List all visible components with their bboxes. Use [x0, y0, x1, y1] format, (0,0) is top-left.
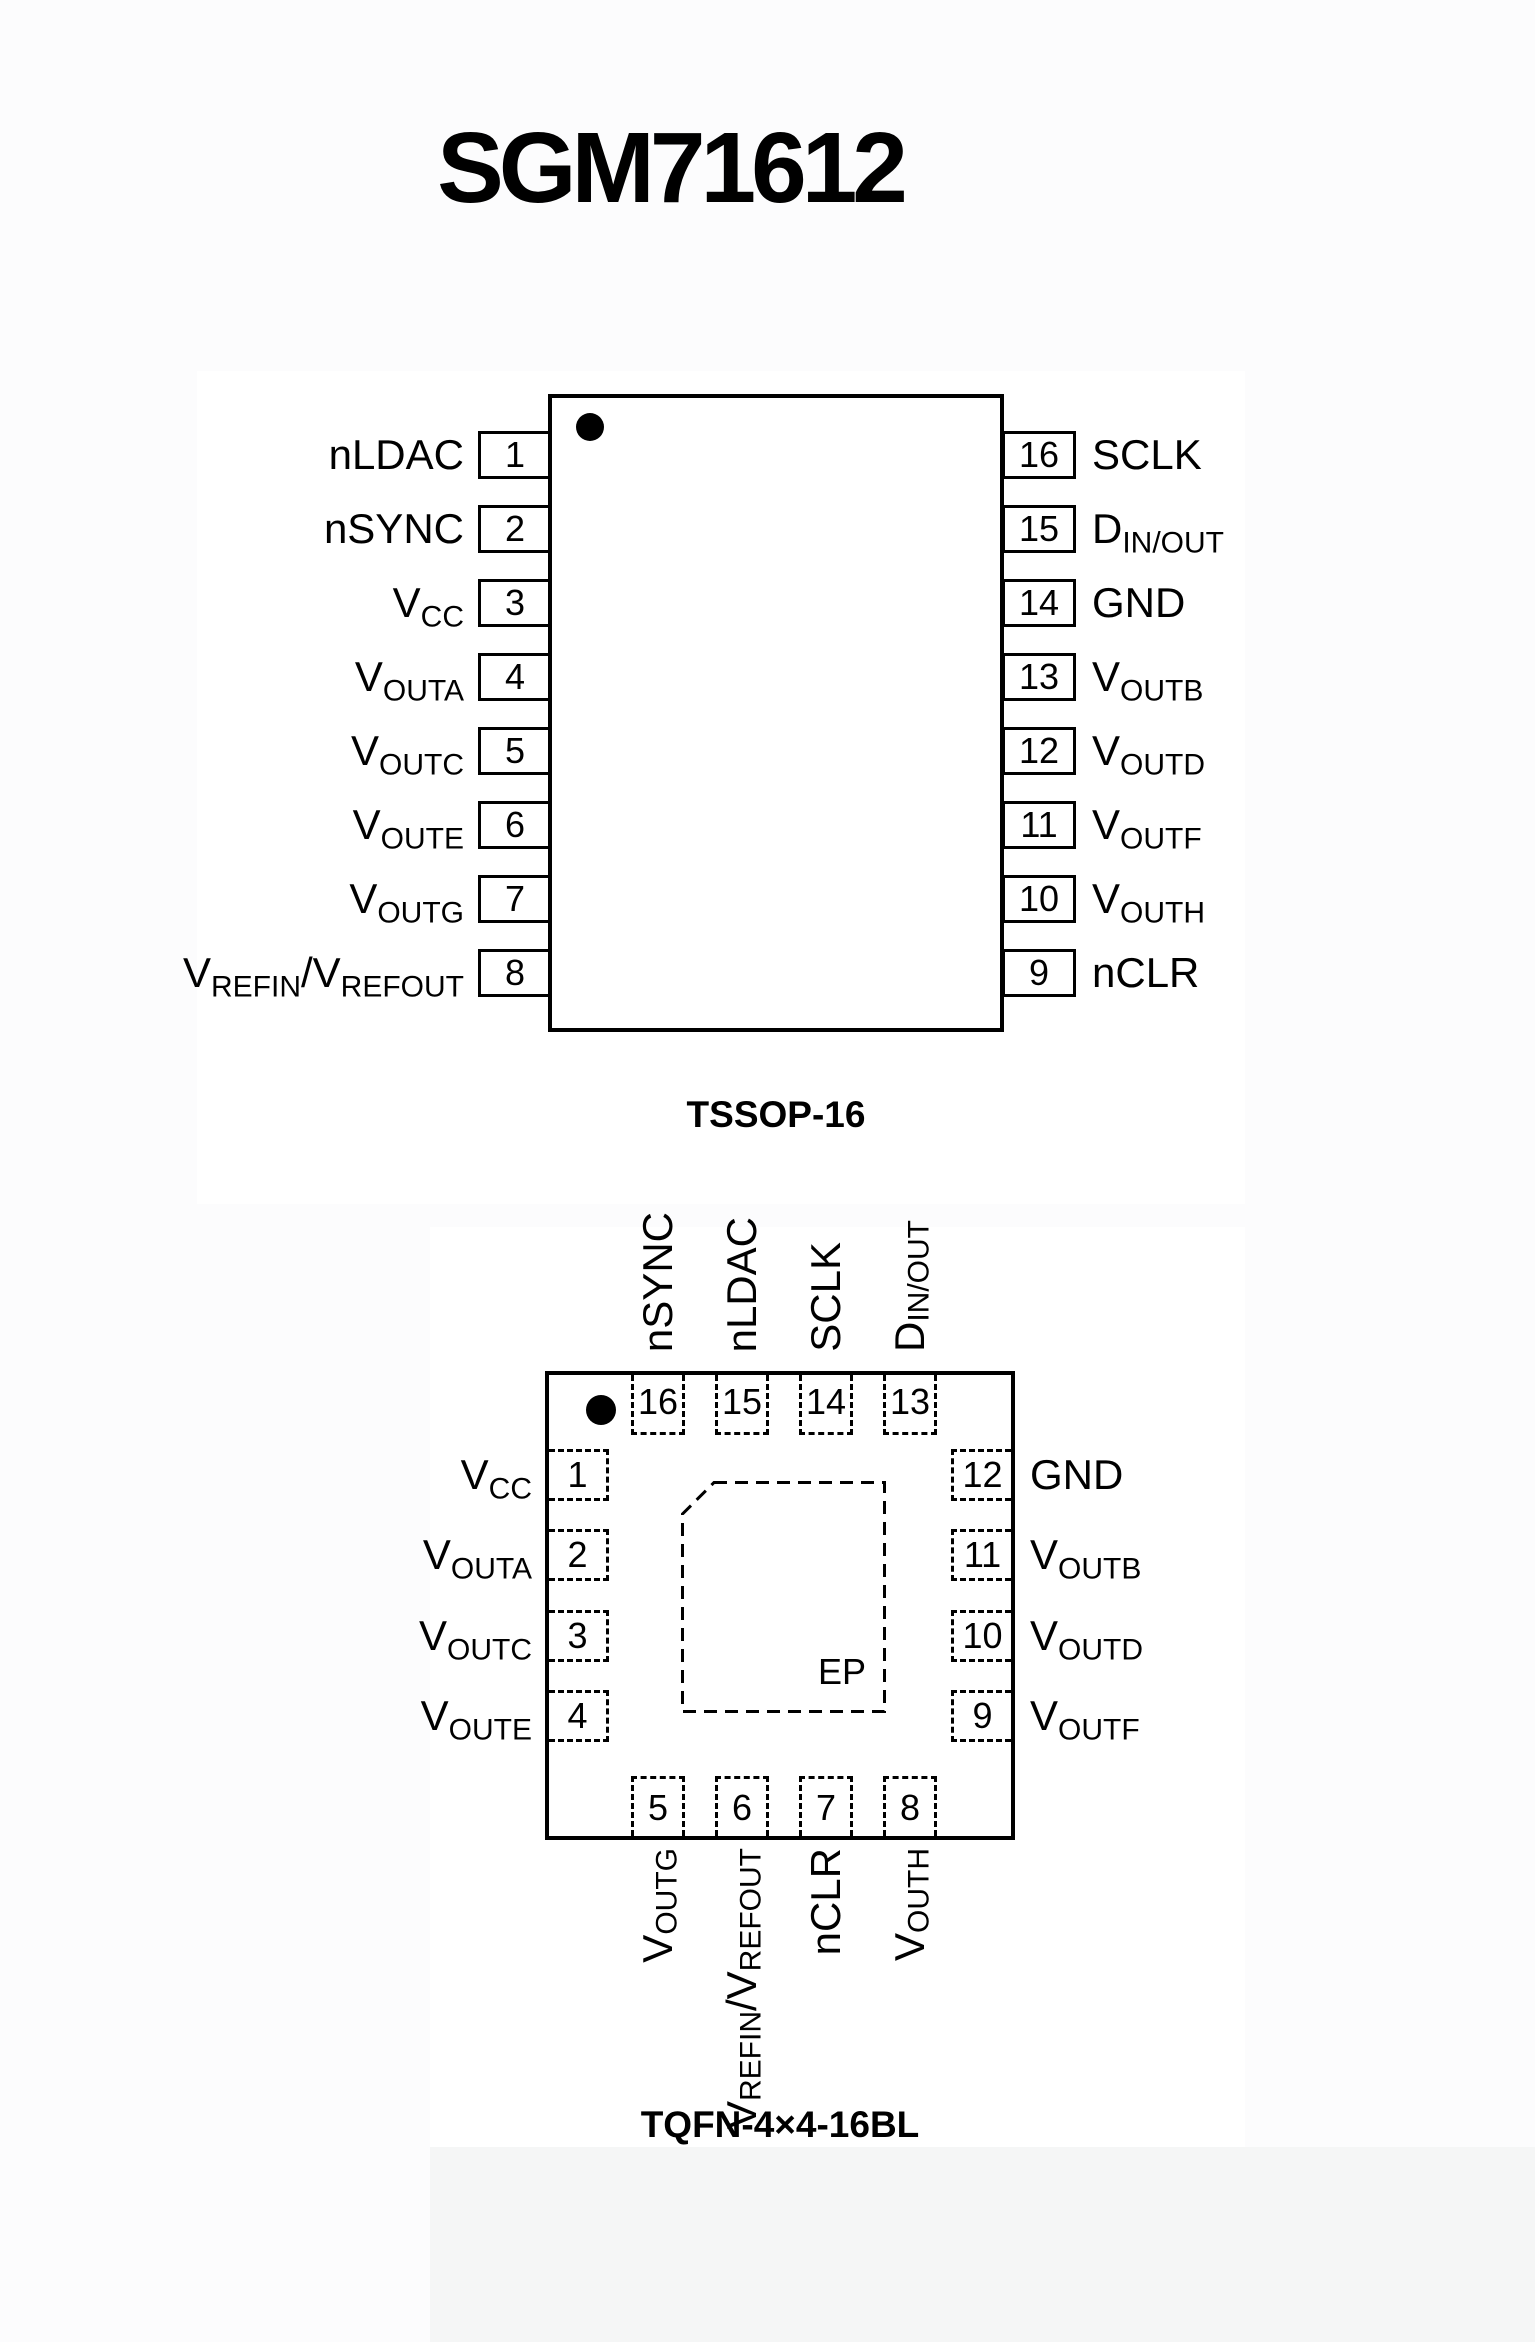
tqfn-pin-1-label: VCC	[190, 1451, 532, 1499]
tssop-pin-5-box: 5	[478, 727, 552, 775]
page-title: SGM71612	[170, 118, 1170, 218]
tssop-pin-4-number: 4	[481, 656, 549, 698]
tssop-pin-3-label: VCC	[110, 579, 464, 627]
tssop-pin-6-box: 6	[478, 801, 552, 849]
tssop-pin-16-number: 16	[1005, 434, 1073, 476]
tssop-pin-15-number: 15	[1005, 508, 1073, 550]
tssop-pin-11-number: 11	[1005, 804, 1073, 846]
tqfn-pin-7-number: 7	[802, 1779, 850, 1836]
tssop-pin-8-label: VREFIN/VREFOUT	[110, 949, 464, 997]
tqfn-pin-2-number: 2	[549, 1532, 606, 1578]
tqfn-pin-2-box: 2	[549, 1529, 609, 1581]
tqfn-pin-13-box: 13	[883, 1375, 937, 1435]
tqfn-pin-1-number: 1	[549, 1452, 606, 1498]
tssop-pin-4-label: VOUTA	[110, 653, 464, 701]
tssop-pin-12-box: 12	[1002, 727, 1076, 775]
tssop-pin-15-label: DIN/OUT	[1092, 505, 1452, 553]
tqfn-pin-16-label: nSYNC	[635, 1212, 681, 1352]
tqfn-pin-14-number: 14	[802, 1375, 850, 1432]
tssop-pin-11-box: 11	[1002, 801, 1076, 849]
tqfn-pin-15-number: 15	[718, 1375, 766, 1432]
tssop-pin-16-box: 16	[1002, 431, 1076, 479]
tssop-pin-10-number: 10	[1005, 878, 1073, 920]
tssop-caption: TSSOP-16	[576, 1094, 976, 1136]
tssop-pin-7-box: 7	[478, 875, 552, 923]
tssop-pin-15-box: 15	[1002, 505, 1076, 553]
tqfn-pin-4-box: 4	[549, 1690, 609, 1742]
tqfn-pin-9-number: 9	[954, 1693, 1011, 1739]
tssop-pin-6-number: 6	[481, 804, 549, 846]
tqfn-pin-4-label: VOUTE	[190, 1692, 532, 1740]
tqfn-caption: TQFN-4×4-16BL	[580, 2104, 980, 2146]
tqfn-pin-5-number: 5	[634, 1779, 682, 1836]
tqfn-pin-6-box: 6	[715, 1776, 769, 1836]
tqfn-pin-14-box: 14	[799, 1375, 853, 1435]
tqfn-pin-14-label: SCLK	[803, 1242, 849, 1352]
tqfn-pin-8-number: 8	[886, 1779, 934, 1836]
tqfn-pin-11-number: 11	[954, 1532, 1011, 1578]
tssop-pin-13-label: VOUTB	[1092, 653, 1452, 701]
tssop-pin-2-box: 2	[478, 505, 552, 553]
tssop-pin-12-label: VOUTD	[1092, 727, 1452, 775]
tssop-pin-12-number: 12	[1005, 730, 1073, 772]
tssop-pin-9-number: 9	[1005, 952, 1073, 994]
tqfn-pin-1-box: 1	[549, 1449, 609, 1501]
tqfn-pin-6-label: VREFIN/VREFOUT	[719, 1848, 765, 2129]
tqfn-pin-15-label: nLDAC	[719, 1217, 765, 1352]
tssop-pin-5-label: VOUTC	[110, 727, 464, 775]
tqfn-pin-9-box: 9	[951, 1690, 1011, 1742]
tqfn-pin-13-label: DIN/OUT	[887, 1220, 933, 1352]
tqfn-pin-3-box: 3	[549, 1610, 609, 1662]
tqfn-pin-11-label: VOUTB	[1030, 1531, 1370, 1579]
tqfn-pin-7-box: 7	[799, 1776, 853, 1836]
tqfn-pin-7-label: nCLR	[803, 1848, 849, 1955]
tqfn-pin-16-box: 16	[631, 1375, 685, 1435]
tqfn-pin-5-box: 5	[631, 1776, 685, 1836]
tssop-pin-14-box: 14	[1002, 579, 1076, 627]
tqfn-pin-11-box: 11	[951, 1529, 1011, 1581]
tssop-pin-6-label: VOUTE	[110, 801, 464, 849]
tssop-pin-7-number: 7	[481, 878, 549, 920]
tqfn-pin-9-label: VOUTF	[1030, 1692, 1370, 1740]
tssop-pin-16-label: SCLK	[1092, 431, 1452, 479]
tqfn-pin-2-label: VOUTA	[190, 1531, 532, 1579]
tssop-pin-14-label: GND	[1092, 579, 1452, 627]
tqfn-pin-5-label: VOUTG	[635, 1848, 681, 1963]
tqfn-pin-10-number: 10	[954, 1613, 1011, 1659]
tqfn-pin-10-box: 10	[951, 1610, 1011, 1662]
tssop-pin1-indicator-dot	[576, 413, 604, 441]
tssop-pin-5-number: 5	[481, 730, 549, 772]
tqfn-pin-6-number: 6	[718, 1779, 766, 1836]
tssop-pin-10-box: 10	[1002, 875, 1076, 923]
tqfn-pin-13-number: 13	[886, 1375, 934, 1432]
tssop-pin-7-label: VOUTG	[110, 875, 464, 923]
tqfn-pin-8-label: VOUTH	[887, 1848, 933, 1961]
tssop-pin-8-box: 8	[478, 949, 552, 997]
tssop-pin-9-box: 9	[1002, 949, 1076, 997]
tssop-pin-14-number: 14	[1005, 582, 1073, 624]
tqfn-pin-12-number: 12	[954, 1452, 1011, 1498]
page-bottom-strip	[430, 2147, 1535, 2342]
tqfn-pin-12-box: 12	[951, 1449, 1011, 1501]
tqfn-pin-4-number: 4	[549, 1693, 606, 1739]
tqfn-pin-10-label: VOUTD	[1030, 1612, 1370, 1660]
tqfn-pin-12-label: GND	[1030, 1451, 1370, 1499]
tssop-pin-1-number: 1	[481, 434, 549, 476]
datasheet-page: SGM71612 1nLDAC2nSYNC3VCC4VOUTA5VOUTC6VO…	[0, 0, 1535, 2342]
tssop-pin-10-label: VOUTH	[1092, 875, 1452, 923]
tssop-pin-9-label: nCLR	[1092, 949, 1452, 997]
tssop-pin-3-number: 3	[481, 582, 549, 624]
tssop-pin-11-label: VOUTF	[1092, 801, 1452, 849]
tqfn-pin-16-number: 16	[634, 1375, 682, 1432]
tqfn-pin-15-box: 15	[715, 1375, 769, 1435]
tqfn-pin-8-box: 8	[883, 1776, 937, 1836]
tssop-pin-2-label: nSYNC	[110, 505, 464, 553]
tqfn-pin-3-label: VOUTC	[190, 1612, 532, 1660]
tssop-pin-4-box: 4	[478, 653, 552, 701]
tssop-package-outline	[548, 394, 1004, 1032]
tssop-pin-13-number: 13	[1005, 656, 1073, 698]
tssop-pin-2-number: 2	[481, 508, 549, 550]
tssop-pin-13-box: 13	[1002, 653, 1076, 701]
tssop-pin-1-box: 1	[478, 431, 552, 479]
ep-label: EP	[770, 1652, 866, 1692]
tssop-pin-8-number: 8	[481, 952, 549, 994]
tssop-pin-3-box: 3	[478, 579, 552, 627]
tssop-pin-1-label: nLDAC	[110, 431, 464, 479]
tqfn-pin-3-number: 3	[549, 1613, 606, 1659]
tqfn-pin1-indicator-dot	[586, 1395, 616, 1425]
